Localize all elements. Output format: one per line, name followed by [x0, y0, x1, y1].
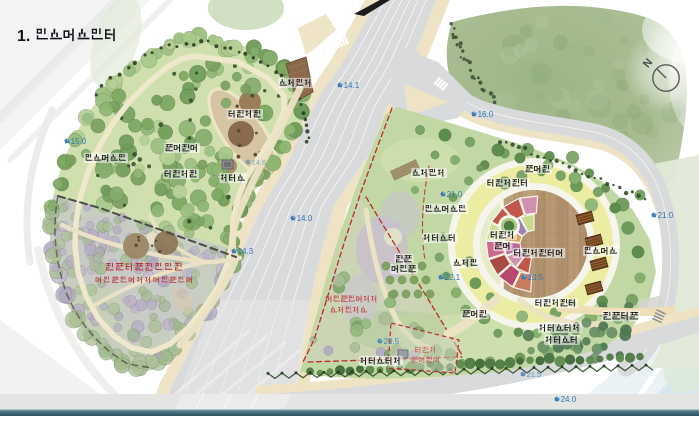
svg-text:21.5: 21.5 [527, 370, 542, 379]
svg-text:1.: 1. [17, 28, 30, 45]
svg-text:14.3: 14.3 [238, 247, 254, 256]
svg-text:15.0: 15.0 [71, 137, 87, 146]
svg-text:24.0: 24.0 [561, 395, 577, 404]
svg-text:21.0: 21.0 [447, 190, 463, 199]
svg-text:14.0: 14.0 [297, 214, 313, 223]
svg-text:20.5: 20.5 [384, 337, 400, 346]
svg-text:16.0: 16.0 [478, 110, 494, 119]
svg-text:14.6: 14.6 [252, 158, 267, 167]
svg-text:14.1: 14.1 [344, 81, 360, 90]
svg-text:21.0: 21.0 [658, 211, 674, 220]
svg-text:20.5: 20.5 [528, 273, 544, 282]
svg-text:22.1: 22.1 [445, 273, 461, 282]
